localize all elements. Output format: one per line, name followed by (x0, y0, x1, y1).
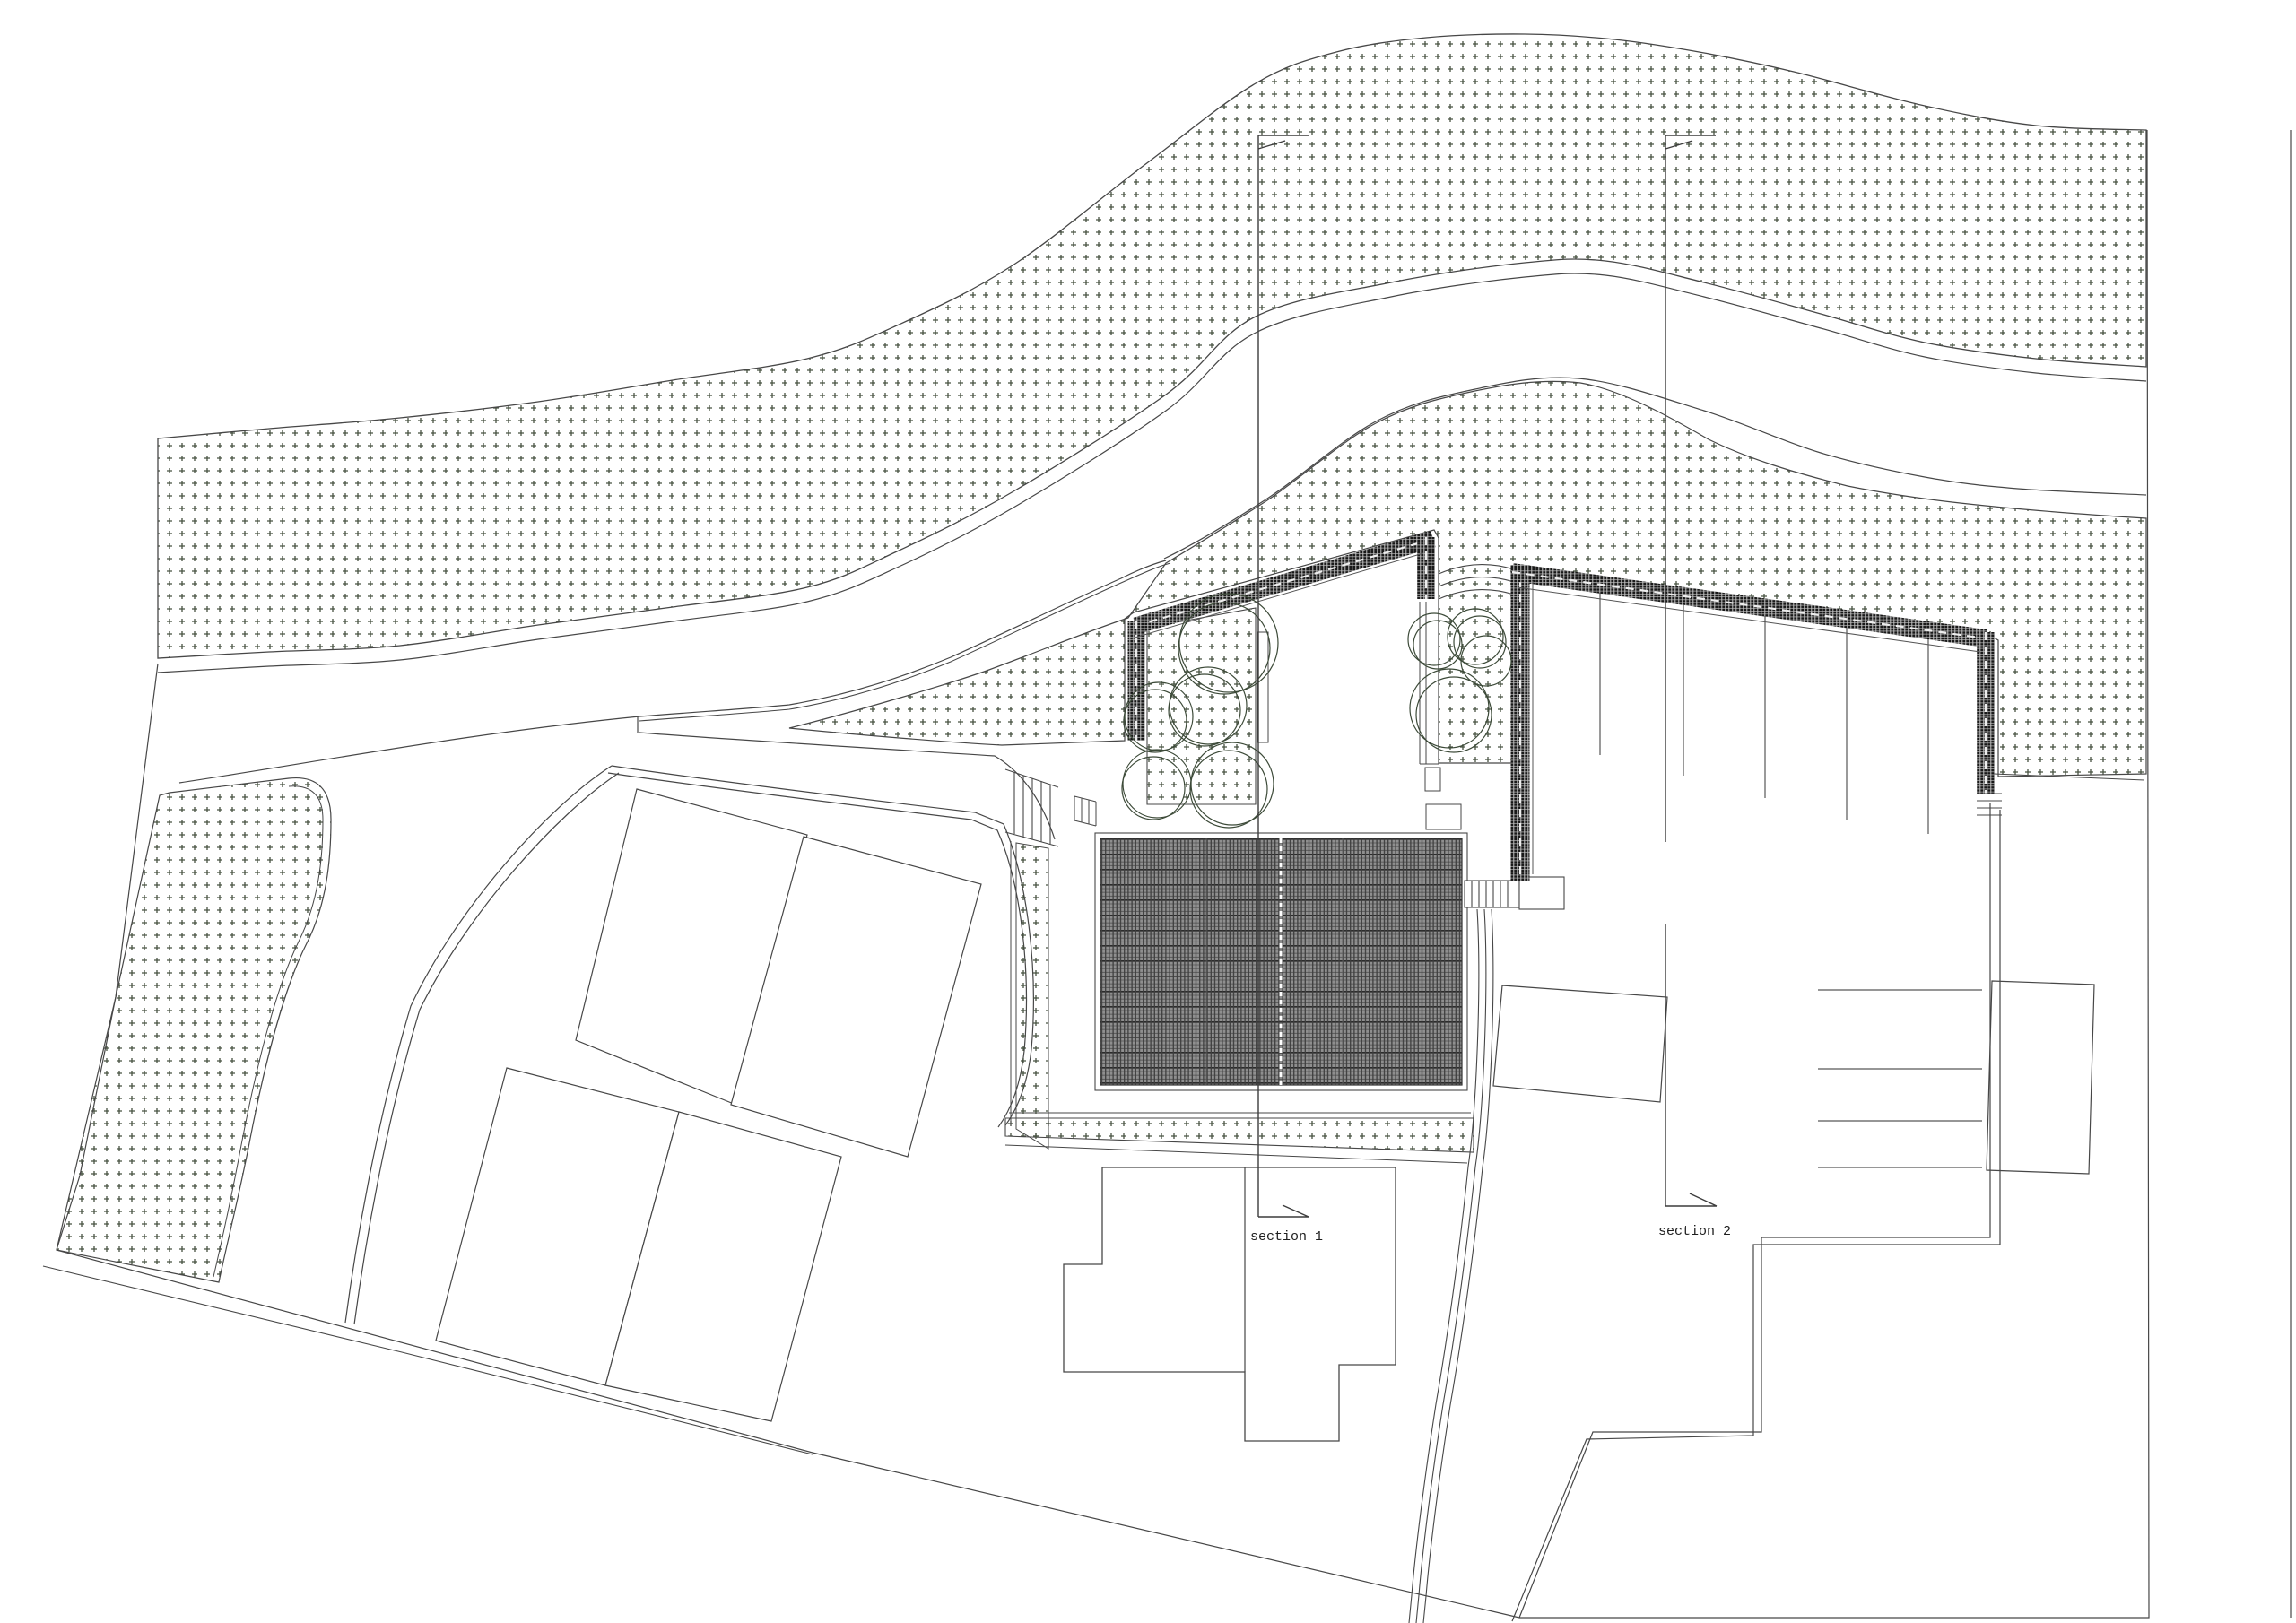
svg-text:section 2: section 2 (1658, 1224, 1731, 1239)
svg-text:section 1: section 1 (1250, 1229, 1323, 1245)
